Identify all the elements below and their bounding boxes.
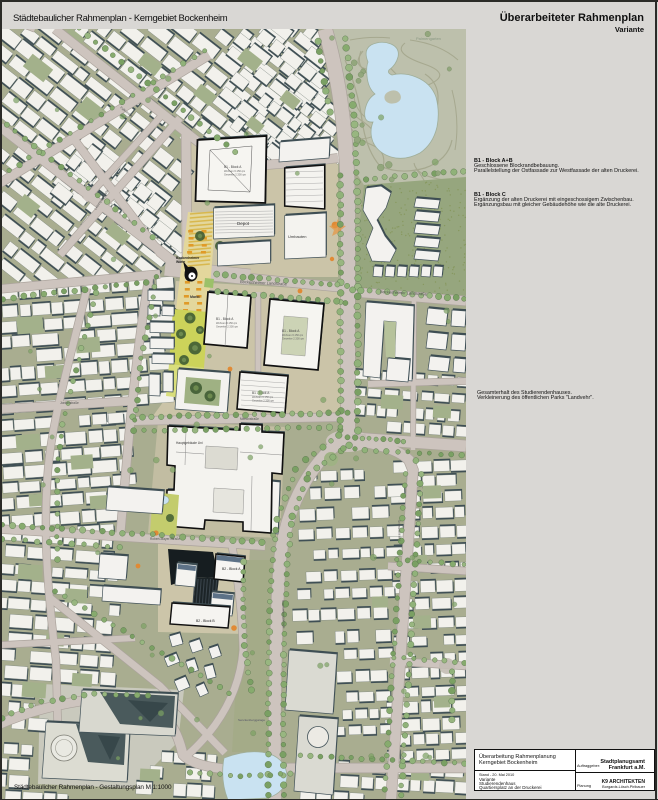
- svg-text:Wohnen 6.150 qm: Wohnen 6.150 qm: [282, 333, 303, 337]
- svg-text:Senckenberggarage: Senckenberggarage: [238, 718, 265, 722]
- svg-text:Palmengarten: Palmengarten: [416, 36, 441, 41]
- svg-text:Markt: Markt: [190, 295, 200, 299]
- svg-text:Mertonstraße: Mertonstraße: [240, 417, 259, 421]
- svg-text:Robert-Mayer-Straße: Robert-Mayer-Straße: [150, 537, 180, 541]
- svg-text:B2 - Block B: B2 - Block B: [196, 619, 215, 623]
- svg-text:Gewerbe 2.300 qm: Gewerbe 2.300 qm: [216, 325, 238, 329]
- svg-text:Gewerbe 2.300 qm: Gewerbe 2.300 qm: [224, 173, 246, 177]
- svg-text:Städtebaulicher Rahmenplan -: Städtebaulicher Rahmenplan - Gestaltungs…: [14, 784, 172, 791]
- svg-text:Hauptgebäude Uni: Hauptgebäude Uni: [176, 441, 203, 445]
- svg-text:Jordanstraße: Jordanstraße: [60, 401, 79, 405]
- svg-text:B1 - Block A: B1 - Block A: [282, 329, 300, 333]
- svg-text:Schwindstraße: Schwindstraße: [397, 520, 402, 541]
- svg-text:B1 - Block A: B1 - Block A: [216, 317, 234, 321]
- svg-text:B2 - Block A: B2 - Block A: [222, 567, 241, 571]
- svg-text:Wohnen 6.150 qm: Wohnen 6.150 qm: [252, 395, 273, 399]
- svg-text:Wohnen 6.150 qm: Wohnen 6.150 qm: [224, 169, 245, 173]
- svg-text:Wohnen 6.150 qm: Wohnen 6.150 qm: [216, 321, 237, 325]
- svg-text:Warte: Warte: [176, 260, 185, 264]
- svg-text:Gewerbe 2.300 qm: Gewerbe 2.300 qm: [252, 399, 274, 403]
- svg-text:Gewerbe 2.300 qm: Gewerbe 2.300 qm: [282, 337, 304, 341]
- svg-text:Umbauten: Umbauten: [288, 234, 306, 239]
- svg-text:B1 - Block A: B1 - Block A: [224, 165, 242, 169]
- svg-text:Depot: Depot: [237, 221, 250, 226]
